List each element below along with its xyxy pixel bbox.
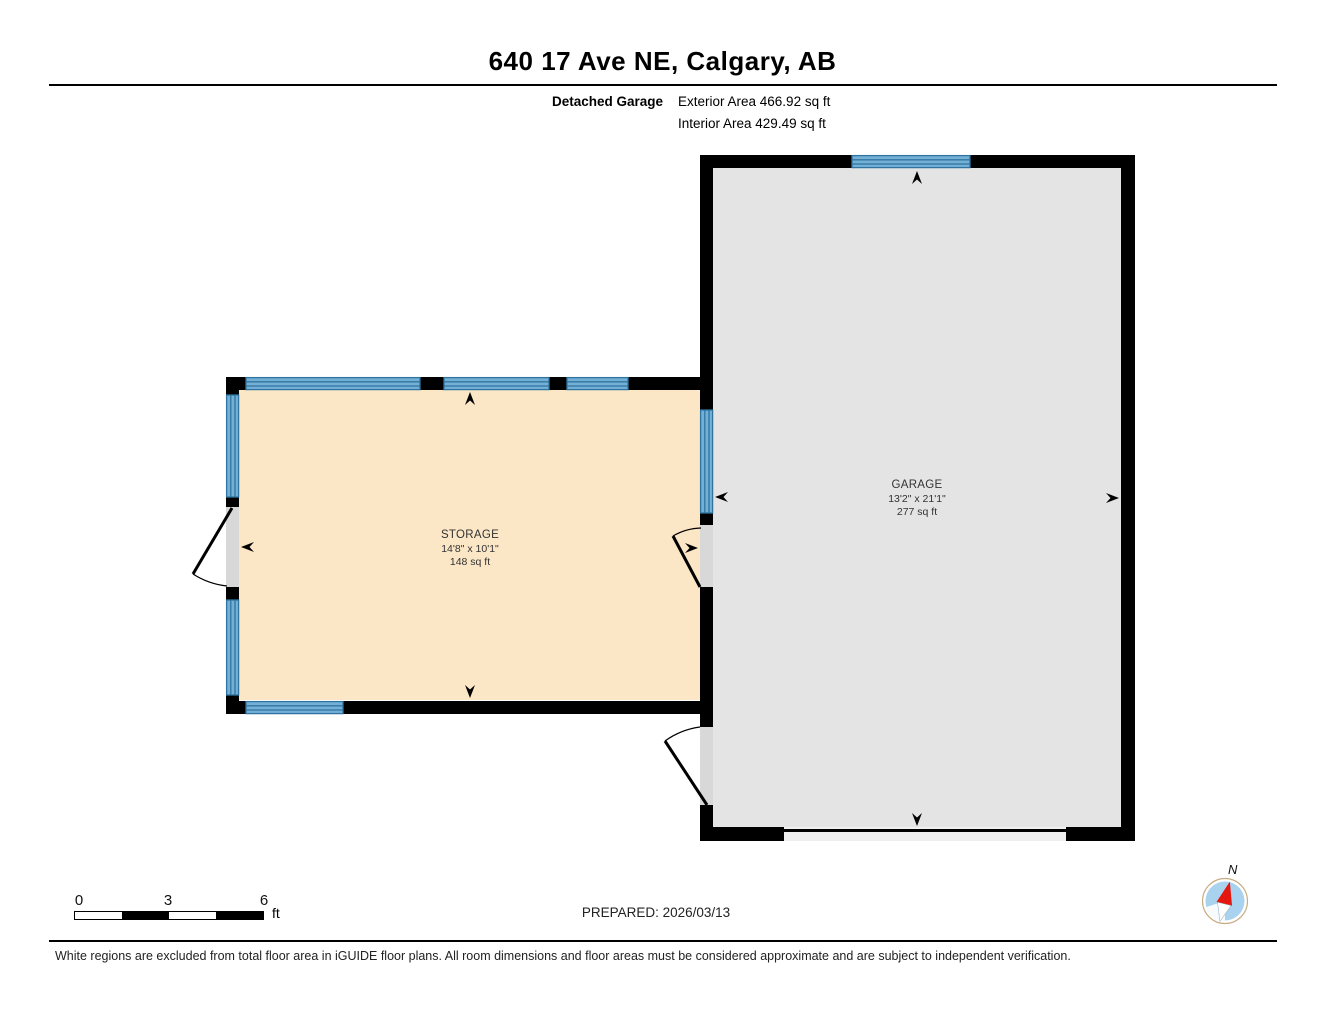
room-area: 148 sq ft — [395, 556, 545, 570]
room-dimensions: 13'2" x 21'1" — [842, 493, 992, 507]
scale-segment — [216, 912, 263, 919]
window — [701, 410, 713, 513]
window — [227, 600, 239, 695]
scale-segment — [169, 912, 216, 919]
window — [444, 378, 549, 390]
scale-unit-label: ft — [272, 905, 280, 921]
scale-segment — [75, 912, 122, 919]
window — [227, 395, 239, 497]
scale-tick-0: 0 — [70, 892, 88, 909]
prepared-date: PREPARED: 2026/03/13 — [556, 905, 756, 920]
storage-room-label: STORAGE 14'8" x 10'1" 148 sq ft — [395, 529, 545, 570]
garage-door — [784, 827, 1066, 841]
scale-tick-6: 6 — [255, 892, 273, 909]
compass-icon — [1197, 874, 1253, 930]
room-area: 277 sq ft — [842, 506, 992, 520]
footer-divider — [49, 940, 1277, 942]
window — [246, 702, 343, 714]
floor-plan-drawing — [0, 0, 1325, 1024]
room-dimensions: 14'8" x 10'1" — [395, 543, 545, 557]
scale-segment — [122, 912, 169, 919]
window — [852, 156, 970, 168]
room-name: STORAGE — [395, 529, 545, 543]
window — [246, 378, 420, 390]
floor-plan-page: 640 17 Ave NE, Calgary, AB Detached Gara… — [0, 0, 1325, 1024]
garage-room-label: GARAGE 13'2" x 21'1" 277 sq ft — [842, 479, 992, 520]
room-name: GARAGE — [842, 479, 992, 493]
window — [567, 378, 628, 390]
disclaimer-text: White regions are excluded from total fl… — [55, 949, 1275, 963]
scale-tick-3: 3 — [159, 892, 177, 909]
scale-bar — [74, 911, 264, 920]
